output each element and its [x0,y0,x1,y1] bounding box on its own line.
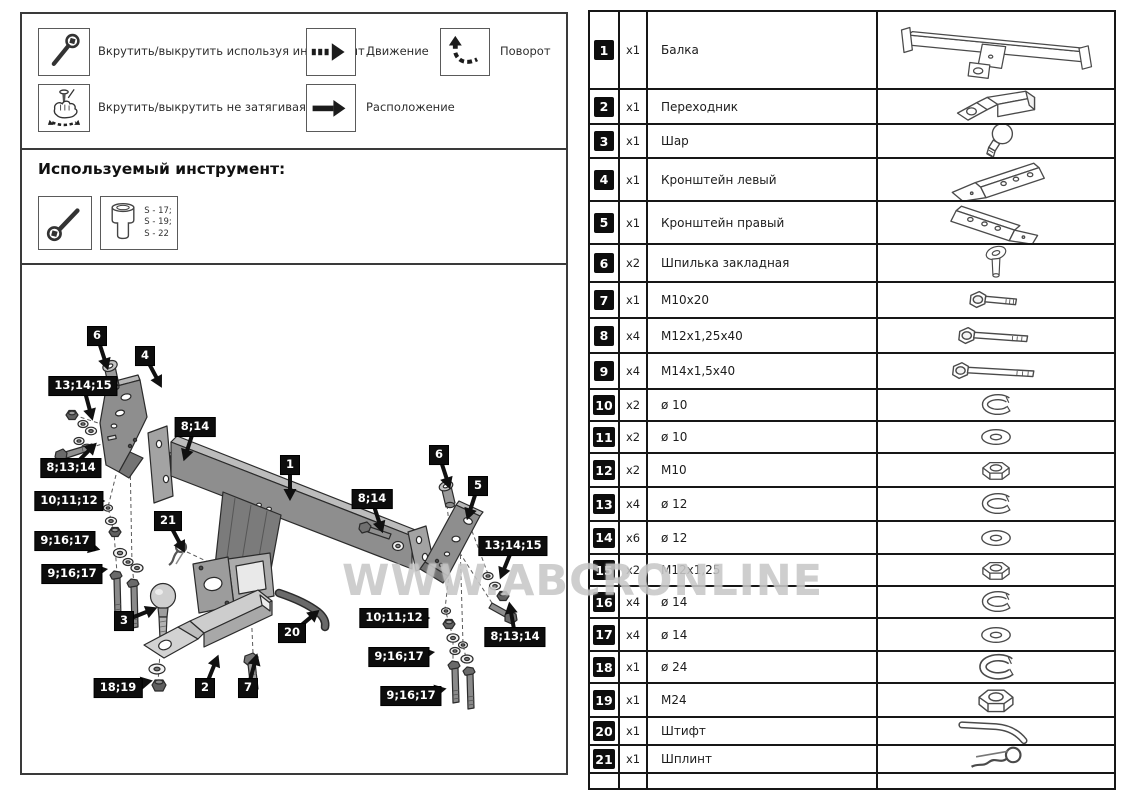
spring-washer-part-icon [974,393,1018,417]
part-image-cell [878,684,1114,716]
part-name: ø 14 [648,587,878,617]
part-number-cell: 12 [590,454,620,486]
part-name: Шпилька закладная [648,245,878,281]
part-qty: x4 [620,488,648,520]
part-number-cell: 19 [590,684,620,716]
part-qty: x4 [620,619,648,650]
part-qty: x2 [620,454,648,486]
part-row: 4x1Кронштейн левый [590,159,1114,202]
part-name [648,774,878,788]
part-name: ø 14 [648,619,878,650]
part-number-badge: 8 [594,326,614,346]
nut-part-icon [975,457,1017,484]
callout-label: 21 [154,511,182,531]
ratchet-wrench-icon [38,196,92,250]
part-number-badge: 2 [594,97,614,117]
wrench-tool-icon [38,28,90,76]
diagram-callout: 9;16;17 [41,564,102,584]
diagram-callouts: 6413;14;158;148;13;1410;11;1218;14219;16… [22,265,566,773]
part-image-cell [878,774,1114,788]
callout-label: 8;14 [352,489,393,509]
part-number-badge: 11 [593,427,614,447]
callout-label: 8;13;14 [484,627,545,647]
part-number-badge: 4 [594,170,614,190]
part-row: 10x2ø 10 [590,390,1114,422]
part-name: ø 12 [648,488,878,520]
part-row: 21x1Шплинт [590,746,1114,774]
part-qty [620,774,648,788]
spring-washer-part-icon [974,590,1018,614]
callout-label: 9;16;17 [368,647,429,667]
part-name: ø 24 [648,652,878,682]
part-image-cell [878,354,1114,388]
diagram-callout: 6 [87,326,107,346]
tools-title: Используемый инструмент: [38,160,285,178]
callout-label: 8;13;14 [40,458,101,478]
callout-label: 9;16;17 [41,564,102,584]
nut-big-part-icon [972,684,1020,716]
beam-part-icon [884,15,1109,85]
socket-sizes: S - 17; S - 19; S - 22 [144,206,172,239]
part-name: Кронштейн правый [648,202,878,243]
ball-part-icon [972,125,1020,157]
part-row: 7x1M10x20 [590,283,1114,319]
part-image-cell [878,746,1114,772]
part-number-cell: 1 [590,12,620,88]
part-image-cell [878,587,1114,617]
diagram-callout: 18;19 [94,678,143,698]
stud-part-icon [979,245,1013,281]
part-image-cell [878,422,1114,452]
diagram-callout: 13;14;15 [478,536,547,556]
part-name: ø 12 [648,522,878,553]
diagram-callout: 2 [195,678,215,698]
part-row: 13x4ø 12 [590,488,1114,522]
part-number-badge: 13 [593,494,614,514]
part-image-cell [878,454,1114,486]
part-row: 16x4ø 14 [590,587,1114,619]
bolt-long-part-icon [949,357,1043,385]
flat-washer-part-icon [974,426,1018,448]
part-row: 2x1Переходник [590,90,1114,125]
part-qty: x1 [620,652,648,682]
diagram-callout: 8;13;14 [484,627,545,647]
part-row: 12x2M10 [590,454,1114,488]
part-image-cell [878,90,1114,123]
callout-label: 18;19 [94,678,143,698]
part-number-cell: 20 [590,718,620,744]
legend-label: Поворот [500,28,551,74]
callout-label: 6 [87,326,107,346]
part-image-cell [878,159,1114,200]
callout-label: 13;14;15 [48,376,117,396]
part-qty: x1 [620,12,648,88]
part-name: Штифт [648,718,878,744]
part-qty: x1 [620,746,648,772]
part-qty: x1 [620,125,648,157]
part-image-cell [878,522,1114,553]
adapter-part-icon [951,90,1041,123]
bracket-left-part-icon [944,159,1049,200]
diagram-callout: 9;16;17 [34,531,95,551]
diagram-callout: 8;14 [175,417,216,437]
part-image-cell [878,619,1114,650]
tools-panel: Используемый инструмент: S - 17; S - 19;… [20,150,568,265]
part-row: 8x4M12x1,25x40 [590,319,1114,354]
part-number-badge: 14 [593,528,614,548]
part-number-cell: 16 [590,587,620,617]
diagram-callout: 6 [429,445,449,465]
part-image-cell [878,488,1114,520]
diagram-callout: 21 [154,511,182,531]
socket-size: S - 19; [144,217,172,228]
part-number-cell: 21 [590,746,620,772]
part-name: Переходник [648,90,878,123]
solid-arrow-icon [306,84,356,132]
callout-label: 20 [278,623,306,643]
part-number-badge: 6 [594,253,614,273]
part-row: 5x1Кронштейн правый [590,202,1114,245]
callout-label: 8;14 [175,417,216,437]
part-qty: x2 [620,390,648,420]
callout-label: 9;16;17 [34,531,95,551]
part-image-cell [878,652,1114,682]
part-number-badge: 12 [593,460,614,480]
exploded-view: 6413;14;158;148;13;1410;11;1218;14219;16… [22,265,566,773]
part-name: M24 [648,684,878,716]
part-name: ø 10 [648,390,878,420]
part-number-badge: 17 [593,625,614,645]
part-number-cell: 5 [590,202,620,243]
parts-table: 1x1Балка2x1Переходник3x1Шар4x1Кронштейн … [588,10,1116,790]
hand-tighten-icon [38,84,90,132]
part-qty: x1 [620,718,648,744]
spring-washer-big-part-icon [969,653,1023,682]
part-qty: x2 [620,245,648,281]
callout-label: 3 [114,611,134,631]
pin-part-icon [954,718,1038,744]
part-qty: x1 [620,283,648,317]
callout-label: 7 [238,678,258,698]
part-row: 15x2M12x1,25 [590,555,1114,587]
part-row: 20x1Штифт [590,718,1114,746]
part-number-cell: 8 [590,319,620,352]
diagram-callout: 5 [468,476,488,496]
part-qty: x1 [620,90,648,123]
callout-label: 10;11;12 [359,608,428,628]
callout-label: 10;11;12 [34,491,103,511]
part-name: Шплинт [648,746,878,772]
socket-icon [106,202,140,244]
part-image-cell [878,390,1114,420]
callout-label: 6 [429,445,449,465]
rotate-arrow-icon [440,28,490,76]
socket-size: S - 17; [144,206,172,217]
part-number-cell: 17 [590,619,620,650]
legend-label: Движение [366,28,429,74]
diagram-callout: 10;11;12 [34,491,103,511]
part-image-cell [878,12,1114,88]
bracket-right-part-icon [946,202,1046,243]
diagram-callout: 9;16;17 [368,647,429,667]
part-number-cell: 13 [590,488,620,520]
diagram-callout: 20 [278,623,306,643]
part-number-badge: 21 [593,749,614,769]
diagram-callout: 4 [135,346,155,366]
diagram-callout: 8;13;14 [40,458,101,478]
part-number-badge: 9 [594,361,614,381]
part-name: Шар [648,125,878,157]
part-image-cell [878,125,1114,157]
part-row: 19x1M24 [590,684,1114,718]
part-row: 18x1ø 24 [590,652,1114,684]
part-row: 14x6ø 12 [590,522,1114,555]
cotter-part-icon [963,746,1029,772]
part-name: M12x1,25x40 [648,319,878,352]
part-number-badge: 18 [593,657,614,677]
part-name: Кронштейн левый [648,159,878,200]
part-number-cell: 10 [590,390,620,420]
part-number-cell: 7 [590,283,620,317]
part-number-cell: 6 [590,245,620,281]
part-row: 1x1Балка [590,12,1114,90]
flat-washer-part-icon [974,624,1018,646]
part-image-cell [878,555,1114,585]
part-row: 11x2ø 10 [590,422,1114,454]
part-number-badge: 19 [593,690,614,710]
part-qty: x6 [620,522,648,553]
part-number-badge: 3 [594,131,614,151]
part-number-cell: 18 [590,652,620,682]
part-number-badge: 10 [593,395,614,415]
part-image-cell [878,245,1114,281]
bolt-medium-part-icon [955,323,1037,349]
diagram-callout: 7 [238,678,258,698]
part-number-cell: 11 [590,422,620,452]
callout-label: 5 [468,476,488,496]
part-qty: x1 [620,202,648,243]
socket-size: S - 22 [144,229,172,240]
diagram-callout: 8;14 [352,489,393,509]
part-qty: x4 [620,354,648,388]
part-number-badge: 1 [594,40,614,60]
diagram-callout: 10;11;12 [359,608,428,628]
bolt-short-part-icon [966,287,1026,313]
part-row: 6x2Шпилька закладная [590,245,1114,283]
part-name: M10 [648,454,878,486]
spring-washer-part-icon [974,492,1018,516]
socket-tool: S - 17; S - 19; S - 22 [100,196,178,250]
part-row: 3x1Шар [590,125,1114,159]
legend-label: Вкрутить/выкрутить не затягивая [98,84,306,130]
part-number-badge: 16 [593,592,614,612]
legend-label: Расположение [366,84,455,130]
part-qty: x1 [620,159,648,200]
part-qty: x2 [620,555,648,585]
diagram-callout: 3 [114,611,134,631]
part-number-cell: 14 [590,522,620,553]
diagram-callout: 13;14;15 [48,376,117,396]
part-number-badge: 7 [594,290,614,310]
part-row [590,774,1114,788]
part-row: 9x4M14x1,5x40 [590,354,1114,390]
part-qty: x2 [620,422,648,452]
part-number-cell: 2 [590,90,620,123]
part-name: M10x20 [648,283,878,317]
part-number-cell: 15 [590,555,620,585]
part-name: ø 10 [648,422,878,452]
callout-label: 4 [135,346,155,366]
part-name: M12x1,25 [648,555,878,585]
callout-label: 2 [195,678,215,698]
part-row: 17x4ø 14 [590,619,1114,652]
part-number-cell: 9 [590,354,620,388]
legend-panel: Вкрутить/выкрутить используя инструмент … [20,12,568,150]
diagram-callout: 9;16;17 [380,686,441,706]
part-number-badge: 15 [593,560,614,580]
callout-label: 9;16;17 [380,686,441,706]
part-number-cell: 3 [590,125,620,157]
part-number-cell: 4 [590,159,620,200]
part-name: M14x1,5x40 [648,354,878,388]
part-number-cell [590,774,620,788]
callout-label: 13;14;15 [478,536,547,556]
part-image-cell [878,283,1114,317]
part-name: Балка [648,12,878,88]
flat-washer-part-icon [974,527,1018,549]
nut-part-icon [975,557,1017,584]
diagram-callout: 1 [280,455,300,475]
part-qty: x4 [620,319,648,352]
diagram-panel: 6413;14;158;148;13;1410;11;1218;14219;16… [20,265,568,775]
part-image-cell [878,718,1114,744]
part-number-badge: 20 [593,721,614,741]
part-qty: x1 [620,684,648,716]
callout-label: 1 [280,455,300,475]
part-qty: x4 [620,587,648,617]
dashed-arrow-icon [306,28,356,76]
part-number-badge: 5 [594,213,614,233]
part-image-cell [878,319,1114,352]
part-image-cell [878,202,1114,243]
